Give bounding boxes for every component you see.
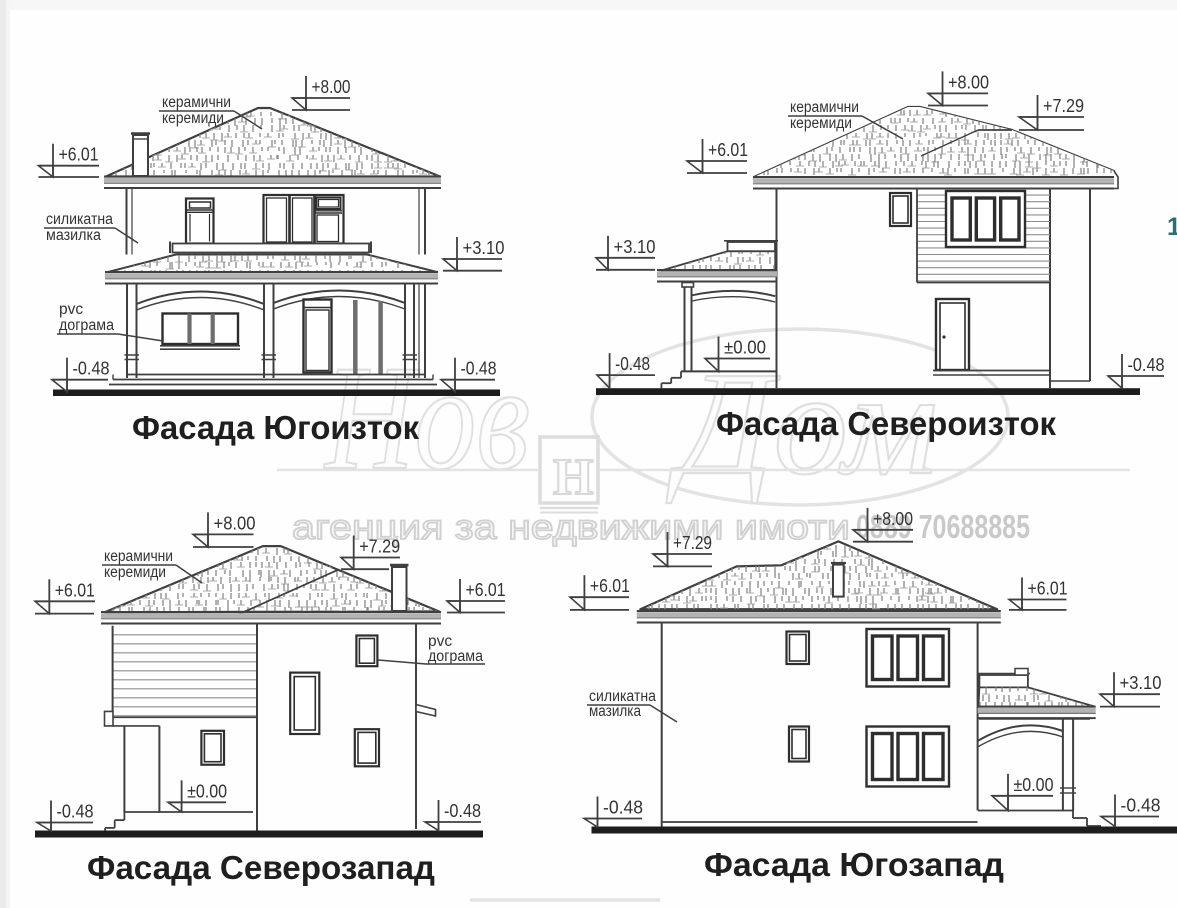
svg-text:керамични: керамични [104,548,173,565]
svg-text:керемиди: керемиди [162,110,224,127]
svg-text:дограма: дограма [59,317,114,334]
svg-text:+6.01: +6.01 [1028,579,1068,599]
svg-text:керемиди: керемиди [104,564,166,581]
svg-text:-0.48: -0.48 [461,359,497,379]
svg-text:-0.48: -0.48 [1121,796,1161,816]
svg-text:+6.01: +6.01 [466,580,506,600]
svg-text:+3.10: +3.10 [1120,673,1162,693]
svg-text:керемиди: керемиди [790,115,852,132]
svg-text:силикатна: силикатна [46,211,113,228]
svg-text:pvc: pvc [59,301,83,318]
svg-text:Фасада Северозапад: Фасада Северозапад [87,849,435,886]
svg-text:+7.29: +7.29 [359,537,400,557]
svg-text:керамични: керамични [162,94,231,111]
svg-text:Фасада Югоизток: Фасада Югоизток [132,409,419,446]
svg-text:+8.00: +8.00 [873,509,913,529]
svg-text:+6.01: +6.01 [55,580,95,600]
svg-text:Фасада Североизток: Фасада Североизток [716,405,1056,442]
svg-text:Н: Н [553,449,593,506]
svg-text:керамични: керамични [790,99,859,116]
svg-text:+3.10: +3.10 [463,238,505,258]
svg-text:дограма: дограма [428,648,483,665]
svg-text:Фасада Югозапад: Фасада Югозапад [704,846,1004,883]
svg-text:+8.00: +8.00 [312,77,351,97]
svg-text:+8.00: +8.00 [948,72,989,92]
svg-text:-0.48: -0.48 [603,798,643,818]
svg-text:1: 1 [1167,213,1177,241]
svg-text:±0.00: ±0.00 [724,338,766,358]
svg-text:+7.29: +7.29 [673,533,712,553]
svg-text:+6.01: +6.01 [59,145,99,165]
svg-text:-0.48: -0.48 [615,354,650,374]
svg-text:мазилка: мазилка [46,227,101,244]
svg-text:+6.01: +6.01 [708,140,748,160]
svg-text:+3.10: +3.10 [614,237,656,257]
svg-text:-0.48: -0.48 [57,802,94,822]
svg-text:+7.29: +7.29 [1043,96,1084,116]
svg-text:-0.48: -0.48 [444,801,481,821]
svg-text:±0.00: ±0.00 [187,781,227,801]
svg-text:+8.00: +8.00 [214,513,256,533]
svg-text:+6.01: +6.01 [590,576,630,596]
svg-text:±0.00: ±0.00 [1014,775,1054,795]
svg-text:-0.48: -0.48 [73,359,110,379]
svg-text:-0.48: -0.48 [1128,355,1165,375]
